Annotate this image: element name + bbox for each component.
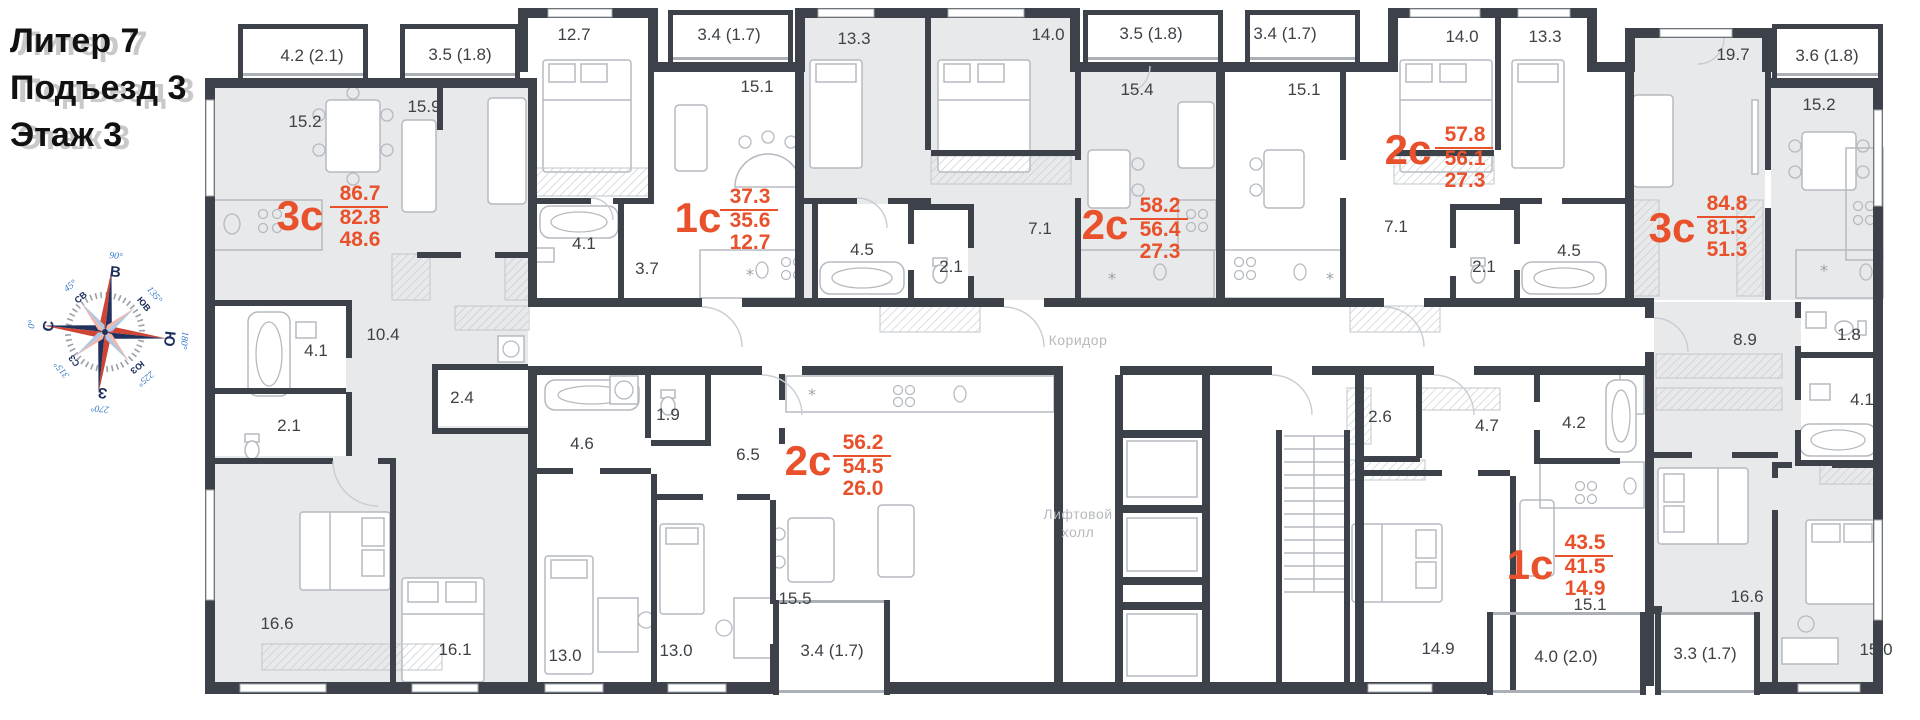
sink: [536, 248, 554, 262]
room-area-label: 13.0: [659, 641, 692, 660]
apartment-total-area: 37.3: [730, 185, 771, 208]
room-area-label: 1.8: [1837, 325, 1861, 344]
room-area-label: 4.7: [1475, 416, 1499, 435]
room-area-label: 15.1: [1287, 80, 1320, 99]
kitchen-block: *: [700, 250, 803, 298]
floorplan-page: Литер 7 Подъезд 3 Этаж 3: [0, 0, 1920, 720]
apartment-kitchen-area: 51.3: [1707, 238, 1748, 261]
compass-direction-label: С: [40, 320, 58, 333]
room-area-label: 2.6: [1368, 407, 1392, 426]
apartment-kitchen-area: 14.9: [1565, 577, 1606, 600]
desk: [598, 598, 654, 652]
apartment-living-area: 81.3: [1707, 216, 1748, 239]
bed: [1352, 524, 1442, 602]
apartment-living-area: 56.4: [1140, 218, 1181, 241]
room-area-label: 13.3: [1528, 27, 1561, 46]
sofa: [1633, 95, 1673, 187]
compass-degree-label: 90°: [109, 250, 124, 262]
kitchen-block: *: [1224, 250, 1342, 298]
bathtub: [1522, 262, 1606, 294]
apartment-label[interactable]: 2с56.254.526.0: [785, 431, 891, 500]
sofa: [1178, 102, 1214, 168]
balcony-area-label: 3.5 (1.8): [428, 45, 491, 64]
plan-header: Литер 7 Подъезд 3 Этаж 3: [10, 18, 186, 159]
staircase: [1284, 436, 1344, 592]
apartment-living-area: 54.5: [843, 455, 884, 478]
bed: [1658, 468, 1748, 544]
balcony-area-label: 3.4 (1.7): [1253, 24, 1316, 43]
bathtub: [1606, 380, 1636, 452]
room-area-label: 16.6: [1730, 587, 1763, 606]
sink: [1806, 312, 1826, 328]
toilet: [245, 434, 259, 459]
compass-direction-label: З: [97, 384, 108, 402]
bed: [810, 60, 862, 168]
room-area-label: 10.4: [366, 325, 399, 344]
compass-degree-label: 270°: [90, 402, 109, 415]
compass-direction-label: В: [109, 263, 122, 281]
sink: [296, 322, 316, 338]
apartment-type-label: 2с: [1082, 201, 1129, 248]
room-area-label: 13.3: [837, 29, 870, 48]
room-area-label: 15.2: [288, 112, 321, 131]
svg-text:*: *: [1326, 269, 1334, 288]
header-entrance: Подъезд 3: [10, 65, 186, 112]
room-area-label: 19.7: [1716, 45, 1749, 64]
room-area-label: 7.1: [1028, 219, 1052, 238]
dining-table: [773, 518, 834, 582]
apartment-kitchen-area: 27.3: [1140, 240, 1181, 263]
dining-table: [1250, 150, 1304, 208]
apartment-kitchen-area: 12.7: [730, 231, 771, 254]
balcony-area-label: 3.6 (1.8): [1795, 46, 1858, 65]
apartment-total-area: 56.2: [843, 431, 884, 454]
room-area-label: 13.0: [548, 646, 581, 665]
sink: [1810, 384, 1830, 400]
sofa: [488, 98, 526, 204]
room-area-label: 14.0: [1031, 25, 1064, 44]
room-area-label: 15.4: [1120, 80, 1153, 99]
room-area-label: 2.1: [1472, 257, 1496, 276]
room-area-label: 2.1: [277, 416, 301, 435]
lift-hall-label: холл: [1062, 524, 1095, 540]
sofa: [675, 105, 707, 171]
room-area-label: 15.1: [740, 77, 773, 96]
tv-panel: [1752, 100, 1758, 174]
bed: [543, 60, 631, 172]
apartment-kitchen-area: 26.0: [843, 477, 884, 500]
svg-text:*: *: [808, 385, 816, 404]
apartment-label[interactable]: 1с37.335.612.7: [675, 185, 778, 254]
room-area-label: 16.1: [438, 640, 471, 659]
apartment-type-label: 2с: [785, 437, 832, 484]
room-area-label: 4.1: [304, 341, 328, 360]
apartment-total-area: 58.2: [1140, 194, 1181, 217]
bed: [1806, 520, 1880, 604]
bed: [660, 524, 704, 614]
compass-degree-label: 45°: [62, 277, 79, 294]
room-area-label: 12.7: [557, 25, 590, 44]
apartment-label[interactable]: 1с43.541.514.9: [1507, 531, 1613, 600]
kitchen-block: *: [786, 376, 1054, 412]
apartment-total-area: 84.8: [1707, 192, 1748, 215]
apartment-type-label: 3с: [1649, 204, 1696, 251]
apartment-type-label: 2с: [1385, 126, 1432, 173]
room-area-label: 16.6: [260, 614, 293, 633]
compass-direction-label: Ю: [160, 330, 179, 347]
balcony-area-label: 4.2 (2.1): [280, 46, 343, 65]
bathtub: [1800, 424, 1876, 456]
room-area-label: 4.5: [850, 240, 874, 259]
apartment-total-area: 86.7: [340, 182, 381, 205]
bathtub: [248, 312, 290, 396]
room-area-label: 2.1: [939, 257, 963, 276]
svg-text:*: *: [1820, 261, 1828, 280]
room-area-label: 3.7: [635, 259, 659, 278]
apartment-kitchen-area: 27.3: [1445, 169, 1486, 192]
lift-hall-label: Лифтовой: [1043, 506, 1112, 522]
room-area-label: 4.5: [1557, 241, 1581, 260]
apartment-living-area: 35.6: [730, 209, 771, 232]
compass-degree-label: 0°: [26, 319, 38, 329]
bed: [300, 512, 390, 590]
room-area-label: 8.9: [1733, 330, 1757, 349]
washing-machine: [498, 336, 524, 362]
svg-text:*: *: [1108, 269, 1116, 288]
compass-direction-label: СЗ: [66, 353, 82, 369]
balcony-area-label: 3.4 (1.7): [800, 641, 863, 660]
room-area-label: 15.5: [778, 589, 811, 608]
room-area-label: 15.0: [1859, 640, 1892, 659]
sofa: [402, 120, 436, 212]
room-area-label: 4.1: [572, 234, 596, 253]
elevator: [1127, 441, 1197, 676]
compass-degree-label: 180°: [178, 331, 191, 350]
room-area-label: 2.4: [450, 388, 474, 407]
apartment-type-label: 3с: [277, 192, 324, 239]
apartment-kitchen-area: 48.6: [340, 228, 381, 251]
apartment-living-area: 82.8: [340, 206, 381, 229]
apartment-living-area: 56.1: [1445, 147, 1486, 170]
room-area-label: 6.5: [736, 445, 760, 464]
sofa: [878, 505, 914, 577]
apartment-type-label: 1с: [1507, 541, 1554, 588]
room-area-label: 14.9: [1421, 639, 1454, 658]
floorplan-svg: * * * * *: [0, 0, 1920, 720]
balcony-area-label: 3.4 (1.7): [697, 25, 760, 44]
room-area-label: 4.1: [1850, 390, 1874, 409]
room-area-label: 15.9: [407, 97, 440, 116]
balcony-area-label: 3.3 (1.7): [1673, 644, 1736, 663]
room-area-label: 4.2: [1562, 413, 1586, 432]
apartment-total-area: 43.5: [1565, 531, 1606, 554]
washing-machine: [610, 376, 638, 404]
desk: [716, 598, 774, 658]
dining-table: [735, 131, 801, 187]
compass-direction-label: СВ: [72, 289, 89, 305]
header-floor: Этаж 3: [10, 112, 186, 159]
room-area-label: 15.2: [1802, 95, 1835, 114]
apartment-total-area: 57.8: [1445, 123, 1486, 146]
compass: С0°СВ45°В90°ЮВ135°Ю180°ЮЗ225°З270°СЗ315°: [18, 242, 198, 422]
room-area-label: 14.0: [1445, 27, 1478, 46]
svg-text:*: *: [746, 265, 754, 284]
bed: [1512, 60, 1564, 168]
corridor-label: Коридор: [1049, 332, 1108, 348]
room-area-label: 4.6: [570, 434, 594, 453]
apartment-living-area: 41.5: [1565, 555, 1606, 578]
room-area-label: 1.9: [656, 405, 680, 424]
balcony-area-label: 3.5 (1.8): [1119, 24, 1182, 43]
bathtub: [820, 262, 904, 294]
room-area-label: 7.1: [1384, 217, 1408, 236]
apartment-type-label: 1с: [675, 194, 722, 241]
header-liter: Литер 7: [10, 18, 186, 65]
balcony-area-label: 4.0 (2.0): [1534, 647, 1597, 666]
